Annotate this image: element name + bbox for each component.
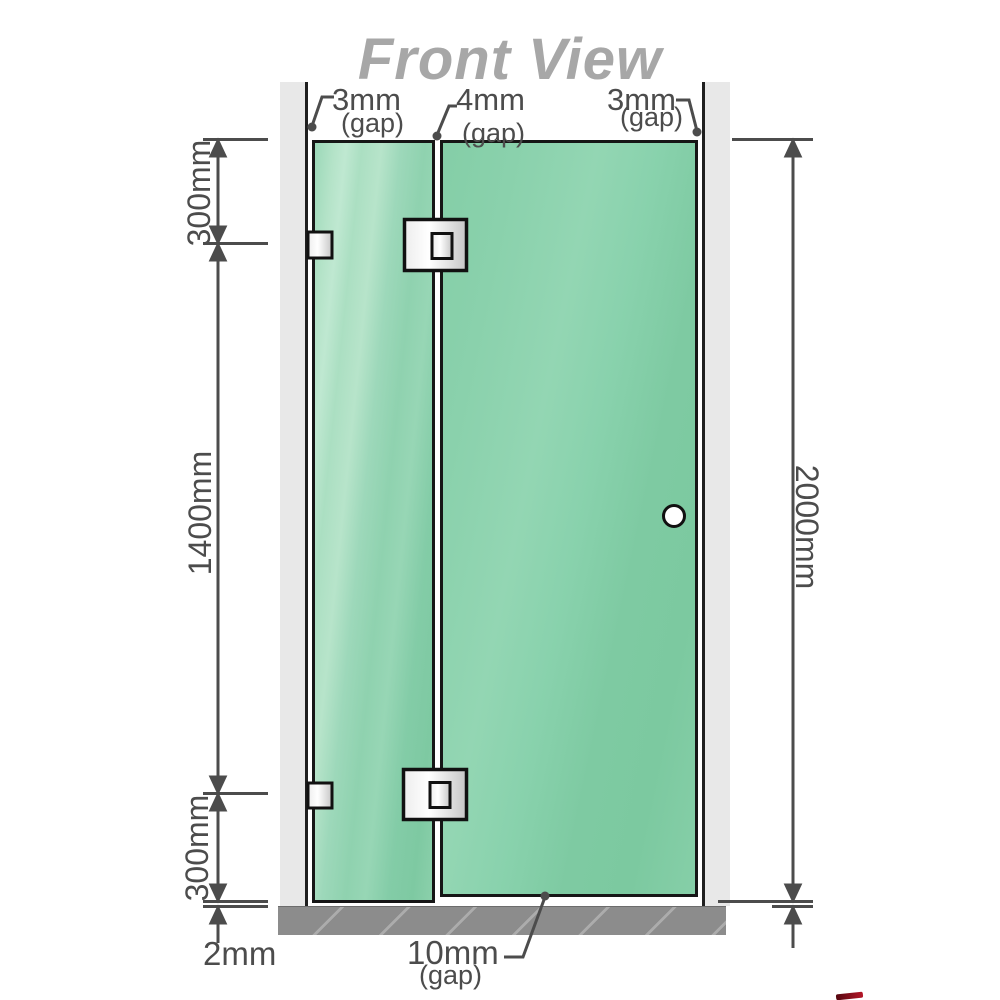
door-handle — [664, 506, 685, 527]
front-view-diagram: Front View — [0, 0, 1000, 1000]
label-left-middle-segment: 1400mm — [183, 363, 217, 663]
hinge-top — [405, 220, 467, 271]
label-bottom-door-gap-note: (gap) — [419, 962, 482, 989]
leader-lines — [312, 97, 697, 957]
label-left-upper-segment: 300mm — [182, 43, 216, 343]
label-top-right-gap-note: (gap) — [620, 104, 683, 131]
label-top-middle-gap-note: (gap) — [462, 120, 525, 147]
wall-bracket-bottom — [308, 783, 332, 808]
label-top-middle-gap-value: 4mm — [456, 84, 525, 115]
wall-bracket-top — [308, 232, 332, 258]
dimension-overlay — [0, 0, 1000, 1000]
label-top-left-gap-note: (gap) — [341, 110, 404, 137]
label-bottom-floor-gap: 2mm — [203, 937, 276, 970]
hinge-bottom — [404, 770, 467, 820]
leader-dots — [308, 123, 702, 901]
label-total-height: 2000mm — [790, 377, 824, 677]
